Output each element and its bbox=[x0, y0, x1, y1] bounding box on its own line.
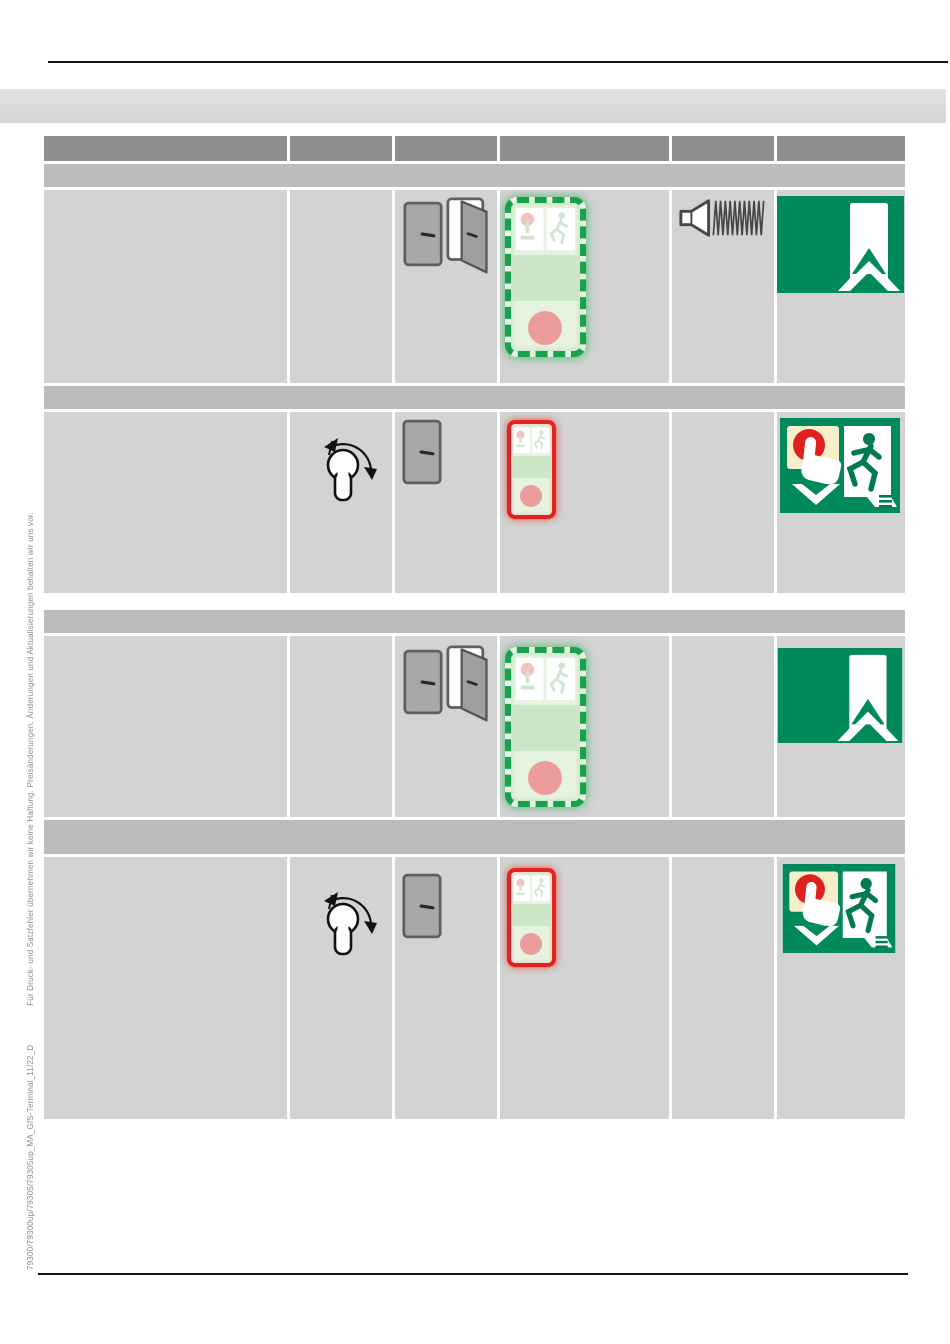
emergency-exit-door-sign bbox=[777, 648, 903, 743]
cell-sign bbox=[777, 636, 905, 817]
terminal-button bbox=[520, 485, 542, 507]
terminal-band bbox=[511, 255, 580, 301]
cell-empty bbox=[290, 636, 392, 817]
terminal-button bbox=[520, 933, 542, 955]
cell-terminal-state bbox=[500, 412, 669, 593]
cell-description bbox=[44, 636, 287, 817]
terminal-unlocked-green-dashed bbox=[505, 197, 586, 357]
alarm-sounder-icon bbox=[676, 196, 768, 240]
disclaimer-text: Für Druck- und Satzfehler übernehmen wir… bbox=[26, 512, 35, 1005]
cell-door-state bbox=[395, 636, 497, 817]
cell-empty bbox=[672, 412, 774, 593]
emergency-exit-door-sign bbox=[777, 196, 904, 293]
column-header-cell bbox=[777, 136, 905, 161]
terminal-band bbox=[511, 705, 580, 751]
cell-empty bbox=[672, 857, 774, 1119]
door-open-icon bbox=[446, 197, 492, 276]
door-closed-icon bbox=[403, 201, 443, 267]
cell-terminal-state bbox=[500, 190, 669, 383]
cell-terminal-state bbox=[500, 636, 669, 817]
terminal-pictogram bbox=[513, 427, 550, 454]
door-closed-icon bbox=[402, 419, 442, 485]
terminal-button bbox=[528, 761, 562, 795]
section-bar bbox=[44, 386, 905, 409]
door-open-icon bbox=[446, 645, 492, 724]
terminal-band bbox=[511, 904, 552, 926]
terminal-pictogram bbox=[515, 657, 576, 701]
terminal-band bbox=[511, 456, 552, 478]
table-lower bbox=[44, 610, 905, 1119]
cell-description bbox=[44, 190, 287, 383]
cell-key bbox=[290, 412, 392, 593]
terminal-locked-red bbox=[507, 868, 556, 967]
terminal-unlocked-green-dashed bbox=[505, 647, 586, 807]
press-button-exit-sign bbox=[778, 864, 900, 953]
terminal-pictogram bbox=[515, 207, 576, 251]
cell-empty bbox=[290, 190, 392, 383]
press-button-exit-sign bbox=[780, 418, 900, 513]
cell-empty bbox=[672, 636, 774, 817]
cell-door-state bbox=[395, 412, 497, 593]
terminal-pictogram bbox=[513, 875, 550, 902]
door-closed-icon bbox=[403, 649, 443, 715]
table-upper bbox=[44, 136, 905, 593]
section-bar bbox=[44, 164, 905, 187]
cell-sign bbox=[777, 857, 905, 1119]
column-header-cell bbox=[500, 136, 669, 161]
cell-key bbox=[290, 857, 392, 1119]
cell-door-state bbox=[395, 857, 497, 1119]
cell-sign bbox=[777, 412, 905, 593]
key-switch-turn-icon bbox=[320, 872, 378, 958]
door-closed-icon bbox=[402, 873, 442, 939]
cell-terminal-state bbox=[500, 857, 669, 1119]
terminal-locked-red bbox=[507, 420, 556, 519]
column-header-cell bbox=[290, 136, 392, 161]
cell-description bbox=[44, 412, 287, 593]
cell-alarm bbox=[672, 190, 774, 383]
doc-code: 79300/79300up/79305/79305up_MA_GfS-Termi… bbox=[26, 1045, 35, 1270]
column-header-cell bbox=[44, 136, 287, 161]
top-rule bbox=[48, 61, 948, 63]
title-banner bbox=[0, 89, 946, 123]
section-bar bbox=[44, 820, 905, 854]
bottom-rule bbox=[38, 1273, 908, 1275]
column-header-cell bbox=[672, 136, 774, 161]
manual-page: 79300/79300up/79305/79305up_MA_GfS-Termi… bbox=[0, 0, 950, 1344]
terminal-button bbox=[528, 311, 562, 345]
side-caption: 79300/79300up/79305/79305up_MA_GfS-Termi… bbox=[26, 512, 36, 1270]
cell-sign bbox=[777, 190, 905, 383]
section-bar bbox=[44, 610, 905, 633]
cell-description bbox=[44, 857, 287, 1119]
cell-door-state bbox=[395, 190, 497, 383]
column-header-cell bbox=[395, 136, 497, 161]
key-switch-turn-icon bbox=[320, 418, 378, 504]
